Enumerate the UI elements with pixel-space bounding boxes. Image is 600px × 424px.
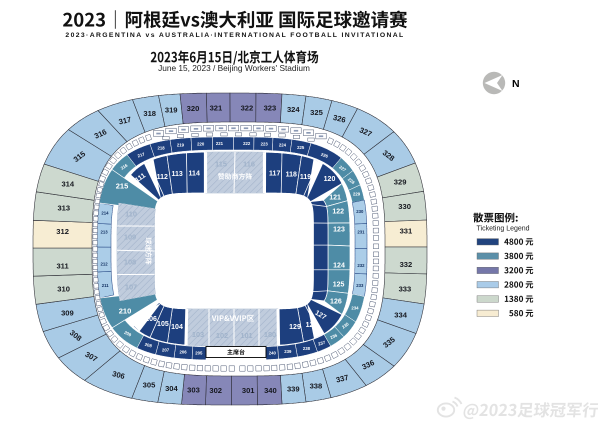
- svg-text:309: 309: [61, 308, 74, 317]
- svg-text:304: 304: [165, 384, 178, 393]
- svg-text:221: 221: [216, 141, 224, 146]
- svg-text:314: 314: [61, 179, 74, 188]
- svg-text:119: 119: [300, 174, 311, 181]
- svg-text:224: 224: [279, 142, 287, 147]
- svg-text:214: 214: [101, 211, 109, 216]
- svg-text:310: 310: [57, 285, 70, 294]
- svg-text:125: 125: [333, 282, 345, 289]
- svg-text:108: 108: [124, 258, 136, 267]
- svg-text:124: 124: [333, 262, 345, 269]
- svg-text:338: 338: [310, 381, 323, 390]
- svg-text:N: N: [512, 78, 520, 90]
- svg-text:240: 240: [269, 350, 277, 355]
- svg-text:223: 223: [261, 141, 269, 146]
- svg-text:329: 329: [394, 177, 407, 186]
- svg-text:313: 313: [57, 203, 70, 212]
- svg-text:230: 230: [356, 209, 364, 214]
- svg-text:311: 311: [56, 261, 69, 270]
- svg-text:239: 239: [284, 349, 292, 354]
- svg-text:222: 222: [243, 141, 251, 146]
- svg-text:229: 229: [353, 192, 361, 197]
- svg-text:312: 312: [56, 227, 69, 236]
- svg-text:June 15, 2023 / Beijing Worker: June 15, 2023 / Beijing Workers' Stadium: [158, 63, 310, 73]
- svg-text:305: 305: [143, 380, 156, 389]
- svg-text:233: 233: [356, 283, 364, 288]
- svg-text:118: 118: [286, 171, 297, 178]
- svg-text:105: 105: [157, 321, 169, 328]
- svg-text:332: 332: [400, 260, 413, 269]
- svg-text:340: 340: [264, 386, 277, 395]
- svg-text:234: 234: [351, 305, 359, 310]
- svg-text:322: 322: [241, 103, 254, 112]
- svg-text:219: 219: [177, 143, 185, 148]
- svg-text:213: 213: [101, 230, 109, 235]
- svg-text:123: 123: [333, 227, 345, 234]
- svg-text:104: 104: [171, 324, 183, 331]
- svg-text:112: 112: [157, 174, 168, 181]
- svg-text:Ticketing Legend: Ticketing Legend: [477, 226, 530, 233]
- svg-text:113: 113: [171, 171, 182, 178]
- svg-text:212: 212: [101, 261, 109, 266]
- svg-text:319: 319: [165, 106, 178, 115]
- svg-text:218: 218: [158, 146, 166, 151]
- svg-text:215: 215: [116, 182, 129, 191]
- svg-text:321: 321: [210, 103, 223, 112]
- svg-text:102: 102: [216, 331, 228, 340]
- svg-text:2023·ARGENTINA vs AUSTRALIA·IN: 2023·ARGENTINA vs AUSTRALIA·INTERNATIONA…: [65, 32, 404, 39]
- svg-text:318: 318: [143, 109, 156, 118]
- svg-text:205: 205: [195, 351, 203, 356]
- svg-text:301: 301: [242, 386, 255, 395]
- svg-text:103: 103: [192, 330, 204, 339]
- svg-text:116: 116: [243, 160, 255, 169]
- svg-text:180: 180: [264, 330, 276, 339]
- svg-text:210: 210: [119, 307, 132, 316]
- svg-text:324: 324: [287, 105, 300, 114]
- svg-text:238: 238: [303, 346, 311, 351]
- svg-text:207: 207: [162, 347, 170, 352]
- svg-text:320: 320: [187, 104, 200, 113]
- svg-text:122: 122: [332, 209, 344, 216]
- svg-text:107: 107: [125, 283, 137, 292]
- svg-text:303: 303: [187, 386, 200, 395]
- svg-text:109: 109: [124, 233, 136, 242]
- svg-text:220: 220: [197, 141, 205, 146]
- svg-text:331: 331: [400, 227, 413, 236]
- svg-text:101: 101: [240, 331, 252, 340]
- svg-text:231: 231: [357, 230, 365, 235]
- svg-text:211: 211: [102, 283, 110, 288]
- svg-text:126: 126: [330, 299, 342, 306]
- svg-text:114: 114: [189, 170, 200, 177]
- svg-text:333: 333: [399, 284, 412, 293]
- svg-text:121: 121: [329, 195, 341, 202]
- svg-text:339: 339: [287, 385, 300, 394]
- svg-text:325: 325: [310, 108, 323, 117]
- svg-text:302: 302: [209, 386, 222, 395]
- svg-text:129: 129: [289, 324, 301, 331]
- svg-text:110: 110: [125, 210, 137, 219]
- svg-text:115: 115: [215, 160, 227, 169]
- svg-text:334: 334: [394, 310, 407, 319]
- svg-text:232: 232: [357, 263, 365, 268]
- svg-text:330: 330: [398, 202, 411, 211]
- svg-text:120: 120: [324, 176, 336, 183]
- svg-text:225: 225: [297, 145, 305, 150]
- svg-text:117: 117: [269, 170, 280, 177]
- svg-text:323: 323: [264, 104, 277, 113]
- svg-text:206: 206: [180, 350, 188, 355]
